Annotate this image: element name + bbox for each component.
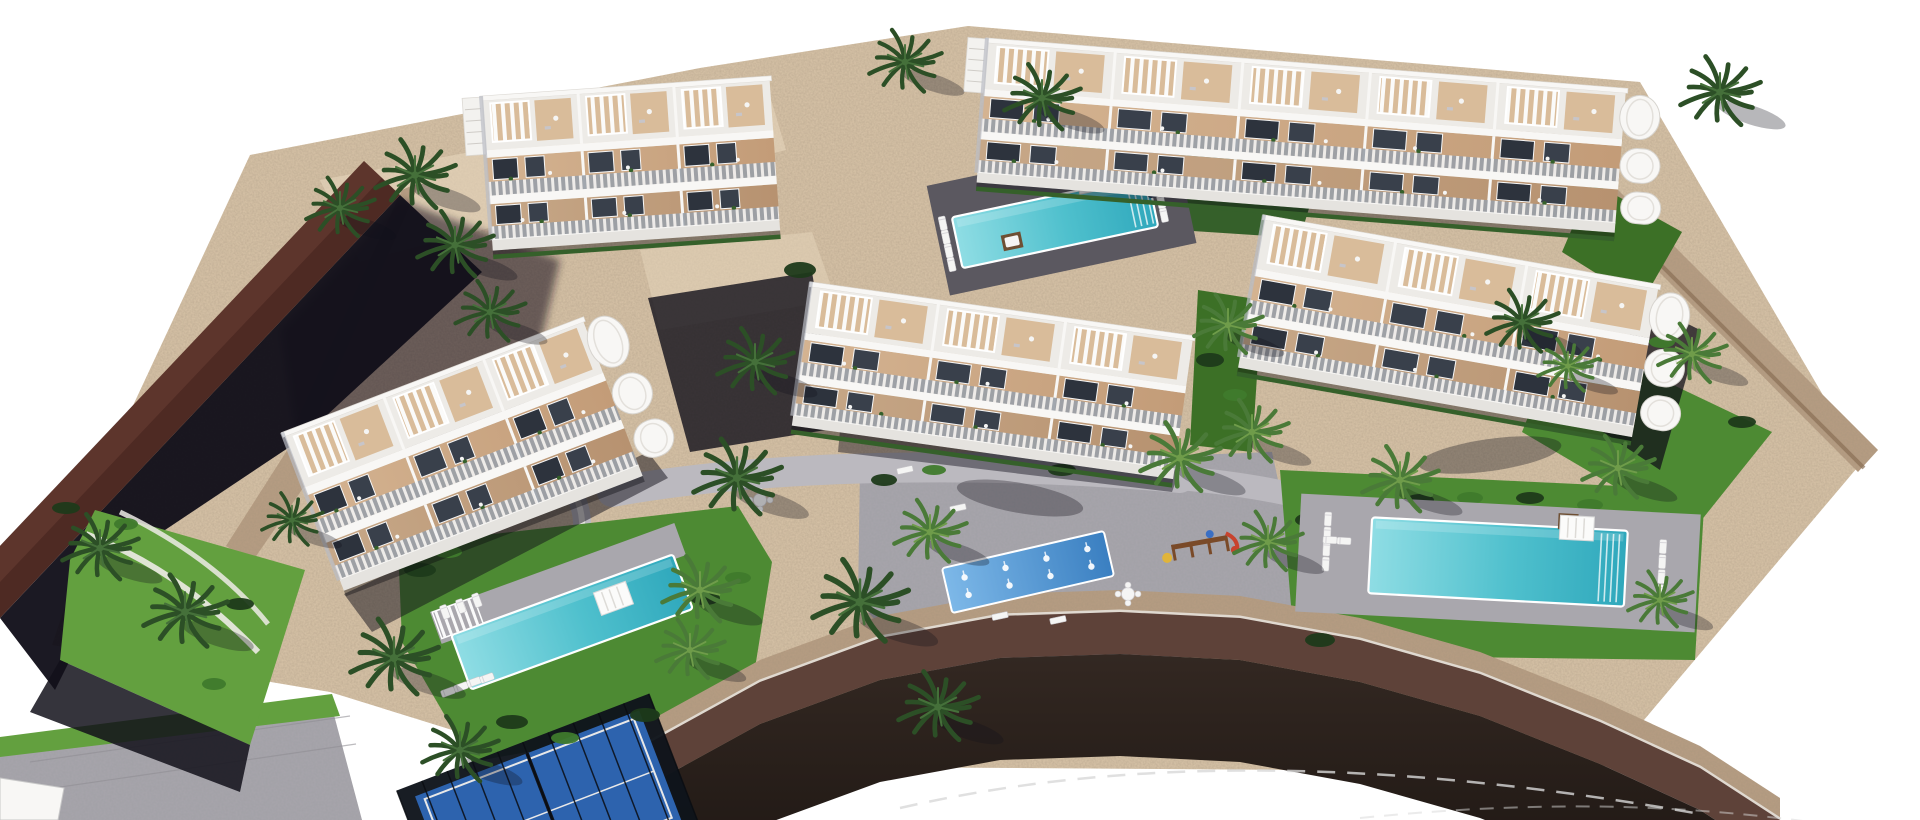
terrace-chair bbox=[1322, 97, 1328, 101]
window-opening bbox=[588, 151, 614, 173]
door-opening bbox=[1106, 384, 1134, 406]
door-opening bbox=[624, 196, 644, 216]
sun-lounger bbox=[1323, 542, 1331, 556]
window-opening bbox=[809, 343, 845, 366]
window-opening bbox=[1114, 152, 1149, 172]
rooftop-pergola bbox=[682, 87, 723, 128]
shrub bbox=[922, 465, 946, 475]
terrace-chair bbox=[1190, 87, 1196, 91]
door-opening bbox=[1160, 112, 1187, 133]
window-opening bbox=[687, 191, 713, 211]
shrub bbox=[202, 678, 226, 690]
solarium-terrace bbox=[1564, 92, 1615, 134]
rooftop-pergola bbox=[1250, 67, 1304, 107]
window-opening bbox=[1117, 109, 1152, 130]
shrub bbox=[871, 474, 897, 486]
door-opening bbox=[621, 149, 642, 171]
sun-lounger bbox=[1337, 537, 1351, 545]
shrub bbox=[52, 502, 80, 514]
shrub bbox=[784, 262, 816, 278]
rooftop-pergola bbox=[586, 94, 627, 135]
rooftop-pergola bbox=[1267, 225, 1326, 272]
door-opening bbox=[1303, 287, 1333, 312]
shrub bbox=[1516, 492, 1544, 504]
garden-pool-east bbox=[1295, 494, 1701, 633]
shrub bbox=[630, 708, 660, 722]
shrub bbox=[1728, 416, 1756, 428]
door-opening bbox=[1434, 310, 1464, 335]
window-opening bbox=[1497, 182, 1532, 202]
door-opening bbox=[720, 189, 740, 209]
architectural-rendering bbox=[0, 0, 1920, 820]
shrub bbox=[1196, 353, 1224, 367]
rooftop-pergola bbox=[1399, 248, 1458, 295]
door-opening bbox=[1426, 356, 1456, 379]
door-opening bbox=[1285, 165, 1312, 184]
rooftop-pergola bbox=[1378, 77, 1432, 117]
building-north-west bbox=[462, 76, 783, 261]
terrace-chair bbox=[639, 119, 645, 123]
door-opening bbox=[1288, 122, 1315, 143]
rooftop-pergola bbox=[1122, 57, 1176, 97]
solarium-terrace bbox=[1309, 71, 1360, 113]
shrub bbox=[226, 598, 254, 610]
rooftop-pergola bbox=[1070, 327, 1126, 370]
rooftop-pergola bbox=[943, 309, 999, 352]
sun-lounger bbox=[1659, 539, 1667, 553]
window-opening bbox=[1063, 378, 1099, 401]
terrace-chair bbox=[736, 113, 742, 117]
door-opening bbox=[979, 367, 1007, 389]
window-opening bbox=[1372, 129, 1407, 150]
window-opening bbox=[986, 142, 1021, 162]
door-opening bbox=[525, 156, 546, 178]
rooftop-pergola bbox=[1505, 87, 1559, 127]
sun-lounger bbox=[1324, 512, 1332, 526]
shrub bbox=[1305, 633, 1335, 647]
window-opening bbox=[1500, 139, 1535, 160]
window-opening bbox=[492, 158, 518, 180]
window-opening bbox=[495, 204, 521, 224]
sun-lounger bbox=[1323, 536, 1337, 544]
terrace-chair bbox=[545, 126, 551, 130]
solarium-terrace bbox=[1590, 282, 1647, 331]
door-opening bbox=[528, 202, 548, 222]
door-opening bbox=[1030, 145, 1057, 164]
door-opening bbox=[716, 142, 737, 164]
window-opening bbox=[1241, 162, 1276, 182]
pool-cabana bbox=[1559, 515, 1594, 541]
shrub bbox=[496, 715, 528, 729]
window-opening bbox=[1245, 119, 1280, 140]
terrace-chair bbox=[1447, 107, 1453, 111]
terrace-chair bbox=[1573, 117, 1579, 121]
sun-lounger bbox=[1658, 554, 1666, 568]
window-opening bbox=[591, 197, 617, 217]
door-opening bbox=[1412, 175, 1439, 194]
window-opening bbox=[684, 144, 710, 166]
window-opening bbox=[936, 361, 972, 384]
shrub bbox=[1223, 389, 1247, 401]
rooftop-pergola bbox=[816, 291, 872, 334]
door-opening bbox=[1295, 333, 1325, 356]
rooftop-pergola bbox=[490, 101, 531, 142]
door-opening bbox=[846, 392, 874, 413]
render-viewport bbox=[0, 0, 1920, 820]
solarium-terrace bbox=[874, 300, 928, 344]
solarium-terrace bbox=[1001, 317, 1055, 361]
shrub bbox=[551, 732, 579, 744]
window-opening bbox=[1369, 172, 1404, 192]
sun-lounger bbox=[1658, 569, 1666, 583]
